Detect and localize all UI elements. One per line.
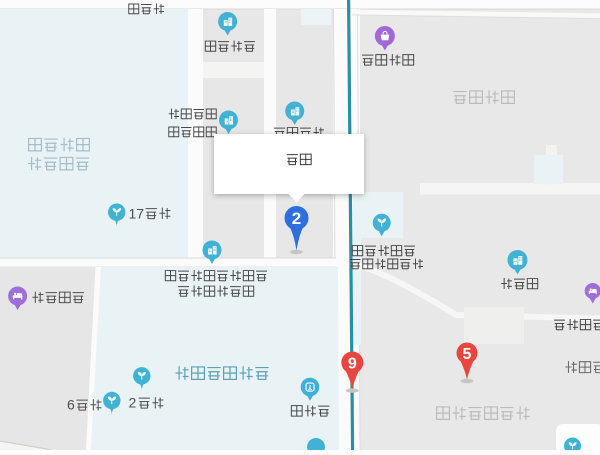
svg-text:9: 9 — [348, 355, 357, 372]
svg-text:6: 6 — [67, 397, 75, 413]
svg-text:17: 17 — [129, 206, 145, 222]
svg-text:2: 2 — [129, 395, 137, 411]
svg-text:5: 5 — [463, 346, 472, 363]
svg-text:2: 2 — [292, 209, 301, 228]
